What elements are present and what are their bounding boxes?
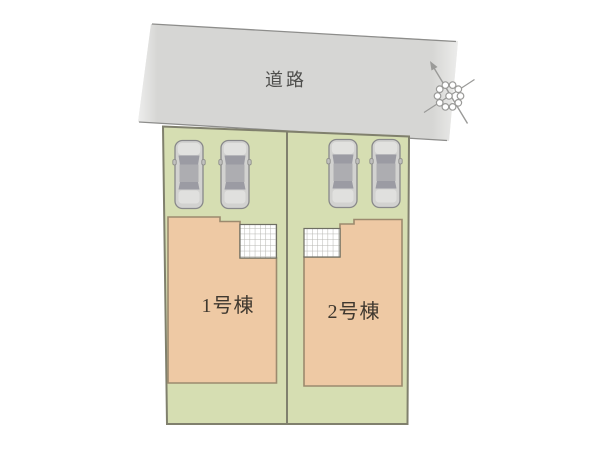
building-1-label: 1号棟 xyxy=(176,289,280,318)
site-plan: 道路 1号棟 2号棟 xyxy=(0,0,600,450)
car-icon xyxy=(173,141,205,209)
car-icon xyxy=(370,140,402,208)
car-icon xyxy=(327,140,359,208)
car-icon xyxy=(219,141,251,209)
building-2-porch-grid xyxy=(304,229,340,258)
building-1-porch-grid xyxy=(240,225,277,259)
building-2-label: 2号棟 xyxy=(302,295,406,324)
road-label: 道路 xyxy=(246,66,326,92)
